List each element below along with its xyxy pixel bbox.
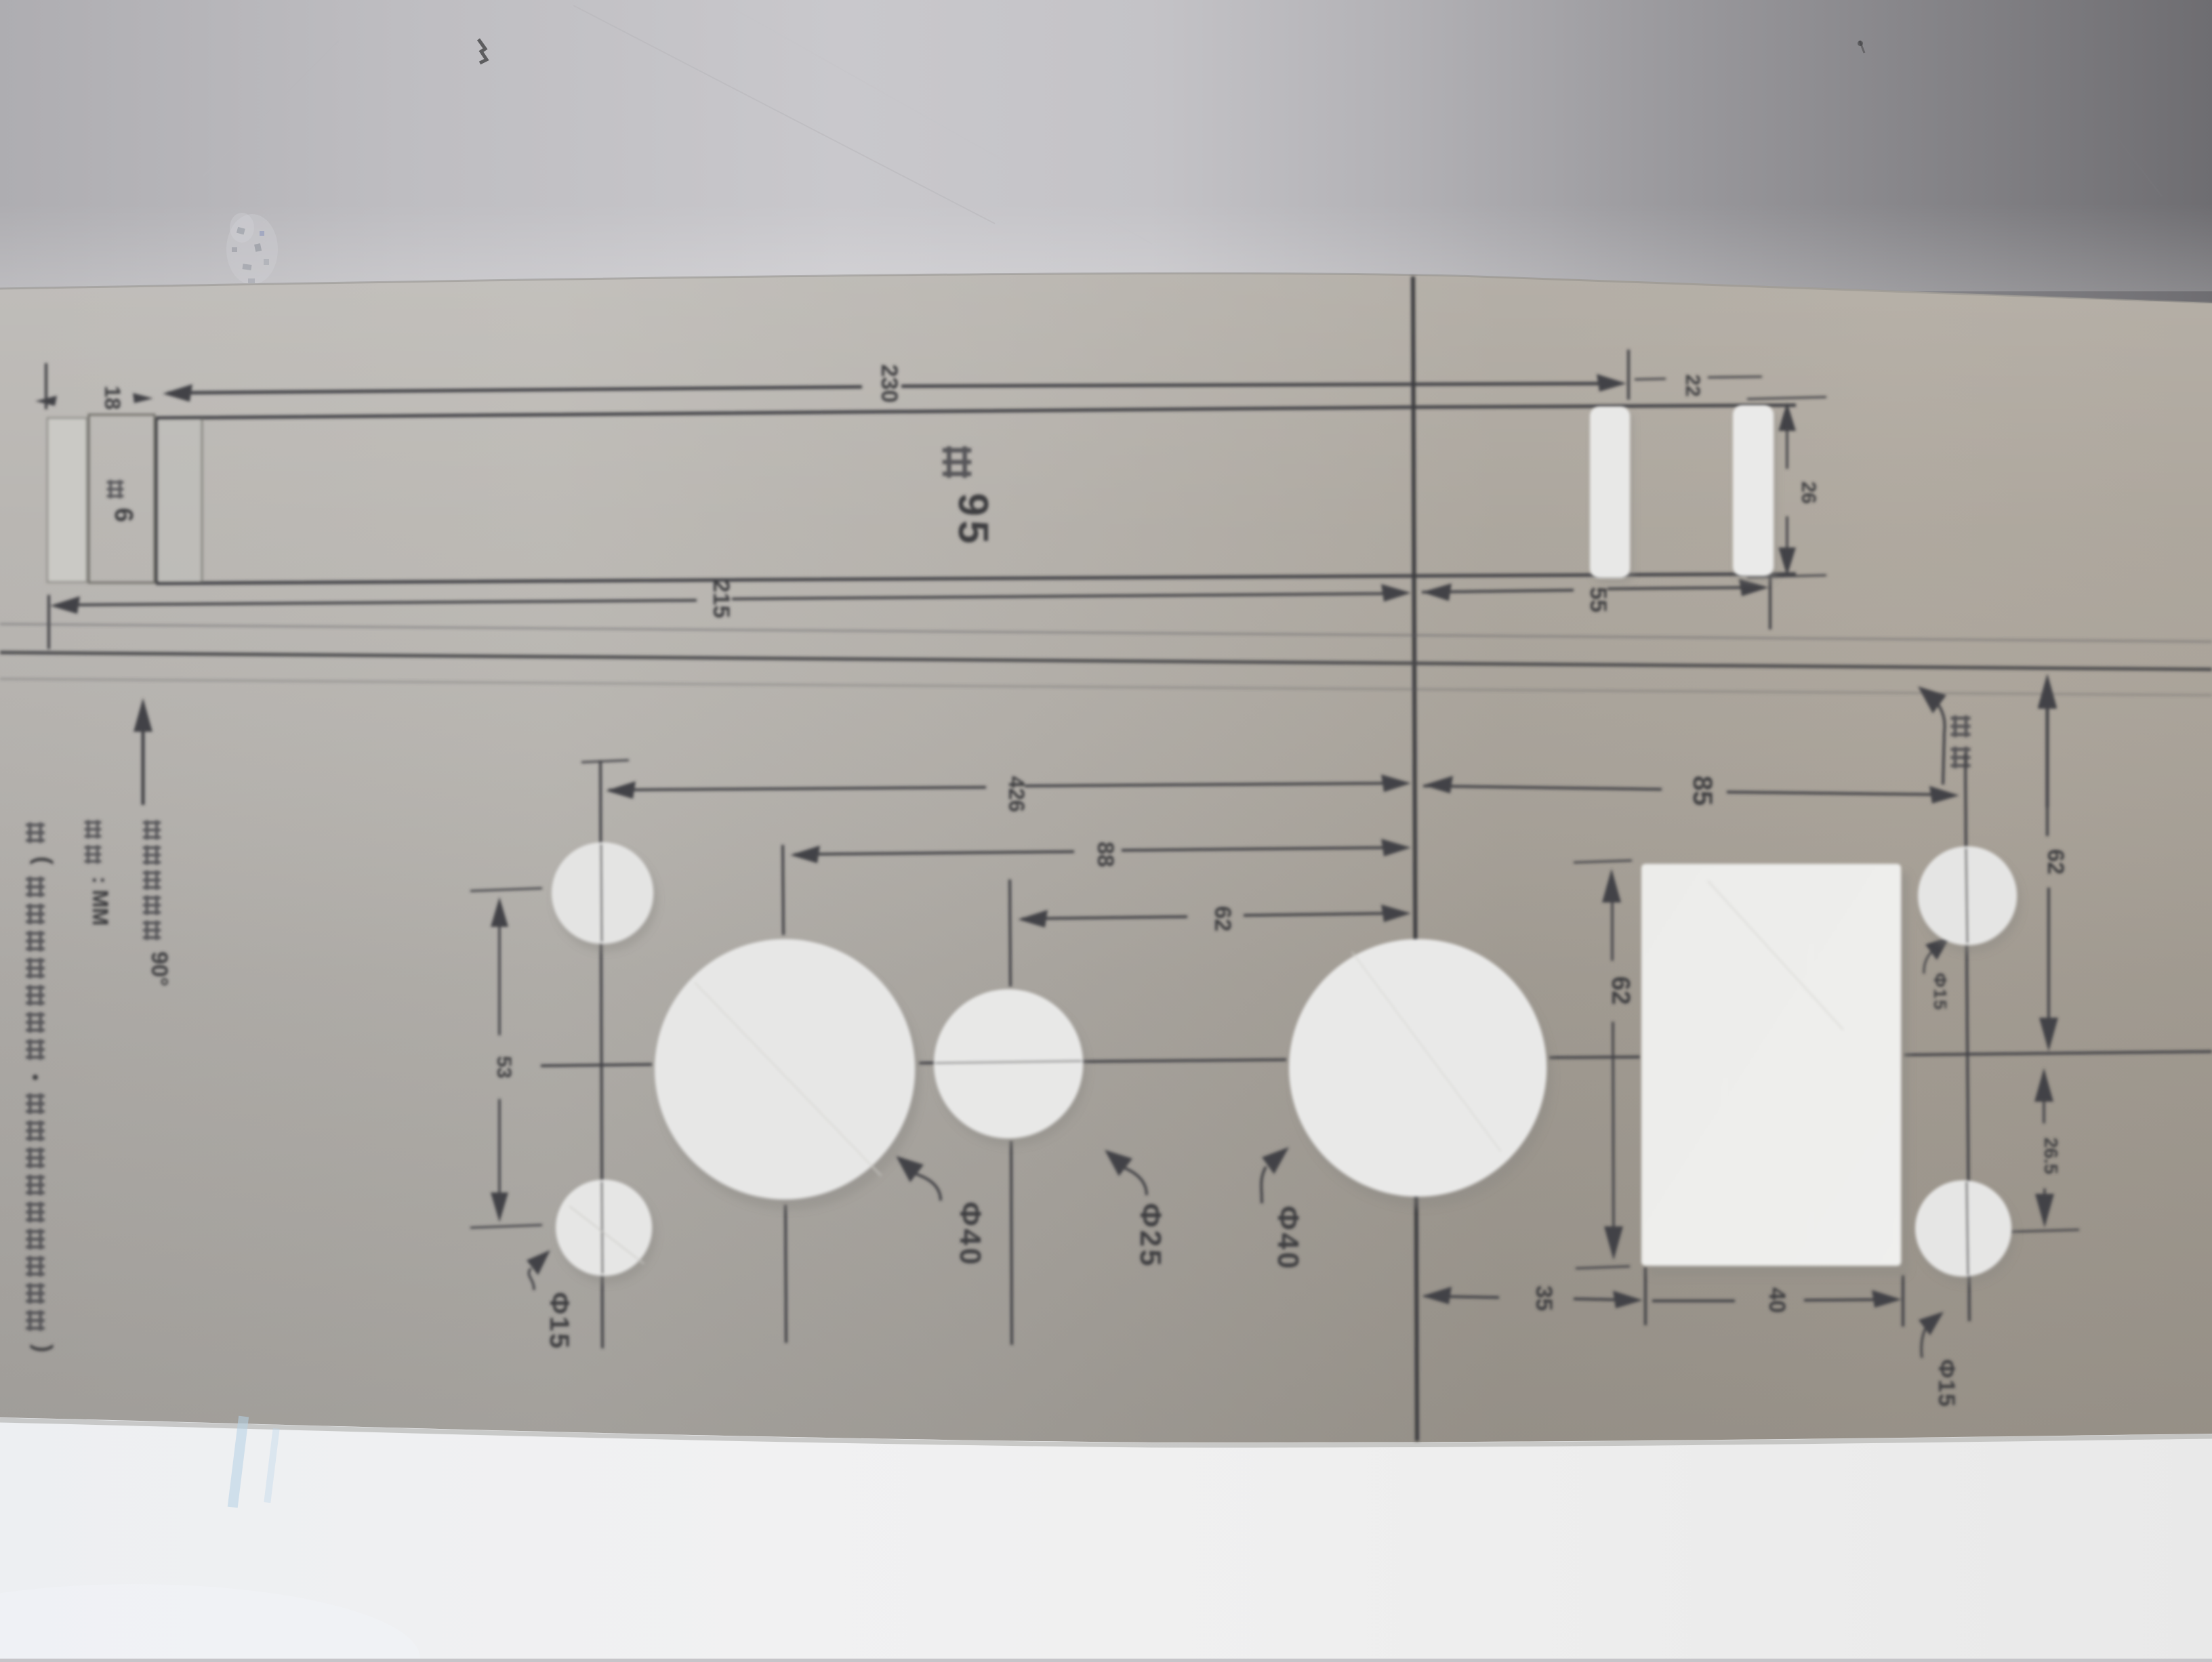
svg-text:85: 85 (1687, 776, 1717, 806)
svg-text:(: ( (30, 856, 58, 865)
svg-text:215: 215 (708, 580, 734, 619)
svg-text:53: 53 (493, 1056, 515, 1078)
svg-text:62: 62 (2043, 849, 2068, 875)
svg-text:426: 426 (1004, 776, 1029, 812)
svg-text:: MM: : MM (88, 877, 112, 926)
svg-text:62: 62 (1210, 906, 1235, 932)
svg-text:Φ40: Φ40 (1271, 1205, 1305, 1271)
svg-text:): ) (30, 1344, 58, 1352)
svg-text:26.5: 26.5 (2041, 1138, 2062, 1175)
svg-text:90°: 90° (146, 951, 172, 986)
svg-text:40: 40 (1764, 1287, 1790, 1313)
svg-text:Φ15: Φ15 (1933, 1359, 1959, 1408)
svg-text:62: 62 (1606, 976, 1635, 1005)
svg-text:35: 35 (1531, 1285, 1557, 1311)
svg-text:6: 6 (109, 507, 138, 522)
svg-text:Φ15: Φ15 (544, 1292, 574, 1350)
svg-text:Φ25: Φ25 (1134, 1203, 1167, 1268)
svg-text:95: 95 (949, 493, 996, 548)
svg-text:26: 26 (1797, 481, 1820, 503)
svg-text:230: 230 (876, 365, 902, 403)
svg-text:22: 22 (1681, 374, 1704, 396)
svg-text:18: 18 (100, 386, 125, 410)
svg-text:Φ15: Φ15 (1930, 973, 1950, 1011)
svg-text:55: 55 (1585, 587, 1611, 612)
svg-text:Φ40: Φ40 (954, 1201, 987, 1267)
svg-text:88: 88 (1092, 842, 1118, 867)
